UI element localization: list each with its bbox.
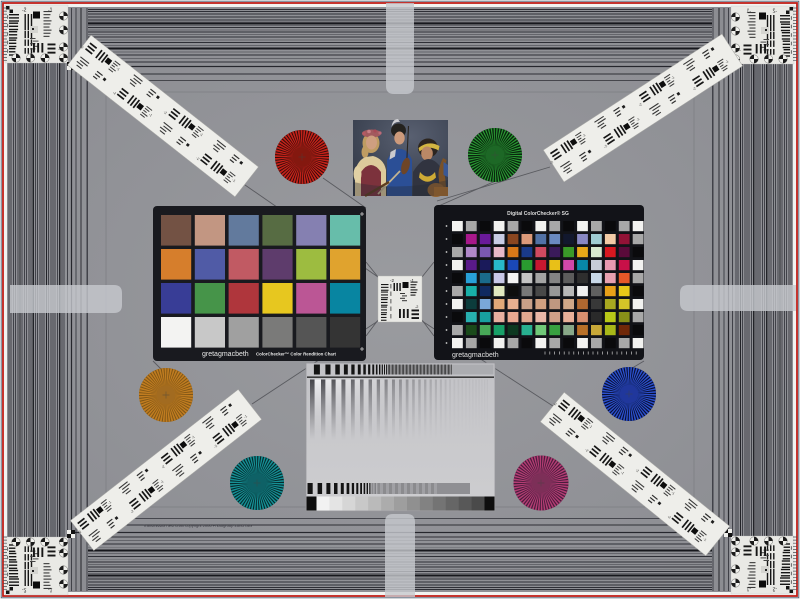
svg-text:ColorChecker™ Color Rendition: ColorChecker™ Color Rendition Chart [256, 352, 337, 357]
svg-text:gretagmacbeth: gretagmacbeth [452, 352, 499, 359]
svg-text:Digital ColorChecker® SG: Digital ColorChecker® SG [507, 210, 569, 217]
svg-text:-2: -2 [22, 587, 27, 593]
svg-text:-2: -2 [390, 278, 394, 283]
svg-text:-1: -1 [48, 587, 53, 593]
svg-text:-1: -1 [410, 278, 414, 283]
svg-text:Transmission test chart copyri: Transmission test chart copyright 2006 P… [143, 523, 252, 528]
svg-text:-2: -2 [22, 8, 27, 14]
svg-text:-1: -1 [746, 9, 751, 15]
svg-text:gretagmacbeth: gretagmacbeth [202, 351, 249, 358]
svg-text:-2: -2 [772, 586, 777, 592]
svg-text:-1: -1 [746, 586, 751, 592]
svg-text:-2: -2 [415, 305, 418, 309]
svg-text:-1: -1 [48, 8, 53, 14]
svg-text:-2: -2 [772, 9, 777, 15]
